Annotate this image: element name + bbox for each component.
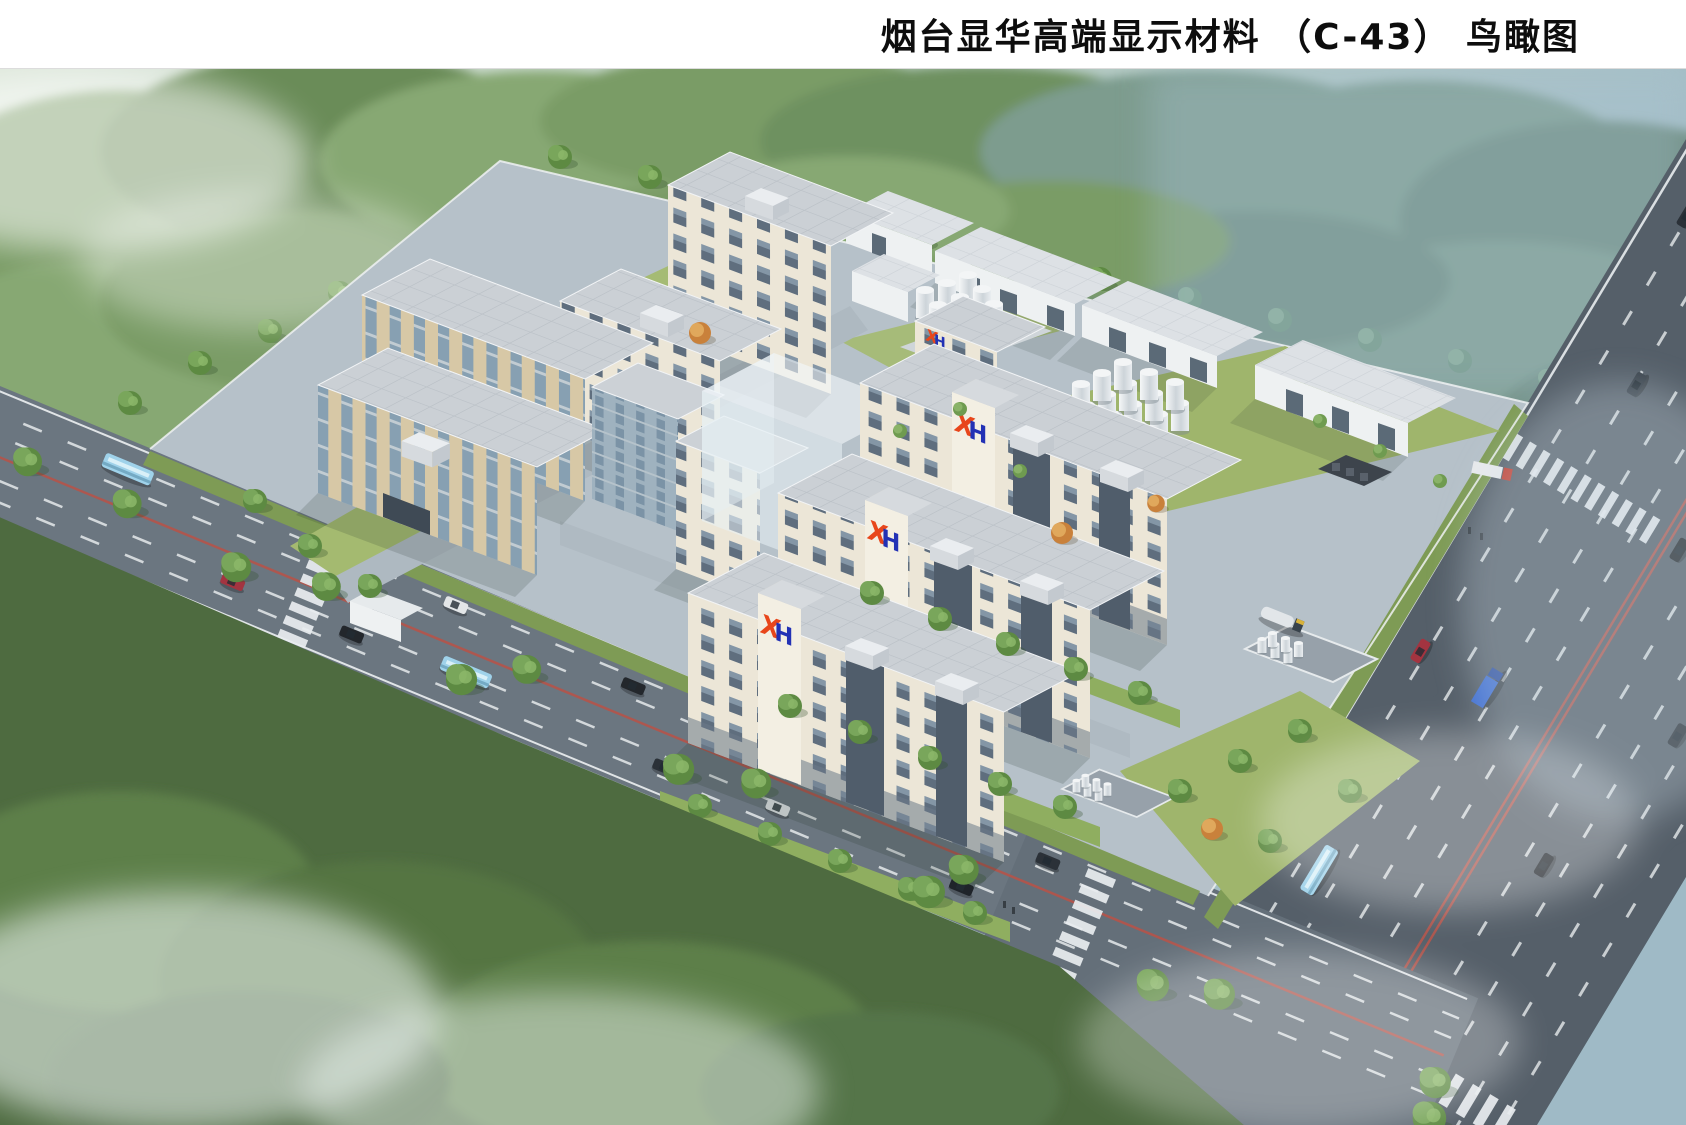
title-bar: 烟台显华高端显示材料 （C-43） 鸟瞰图 — [0, 0, 1686, 68]
birdseye-rendering: X H — [0, 68, 1686, 1125]
rendering-page: 烟台显华高端显示材料 （C-43） 鸟瞰图 — [0, 0, 1686, 1125]
page-title: 烟台显华高端显示材料 （C-43） 鸟瞰图 — [881, 8, 1580, 60]
